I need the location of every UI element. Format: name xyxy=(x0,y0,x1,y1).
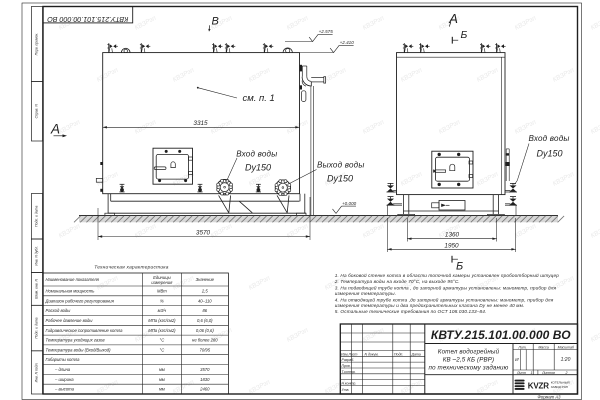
svg-text:Техническая характеристика: Техническая характеристика xyxy=(94,265,168,271)
svg-text:КВТУ.215.101.00.000 ВО: КВТУ.215.101.00.000 ВО xyxy=(47,15,129,24)
svg-text:см. п. 1: см. п. 1 xyxy=(243,93,275,104)
svg-text:Перв. примен.: Перв. примен. xyxy=(35,33,39,56)
svg-text:70/95: 70/95 xyxy=(200,347,211,352)
svg-text:В: В xyxy=(212,15,219,27)
svg-text:Подп.: Подп. xyxy=(394,352,403,356)
svg-text:Лит.: Лит. xyxy=(517,345,526,349)
svg-text:1. На боковой стенке котла: 1. На боковой стенке котла в области топ… xyxy=(335,272,559,278)
svg-text:Наименование показателя: Наименование показателя xyxy=(46,277,100,282)
svg-text:МПа (кгс/см2): МПа (кгс/см2) xyxy=(148,318,176,323)
svg-text:86: 86 xyxy=(202,308,207,313)
svg-text:измерения: измерения xyxy=(151,280,173,285)
svg-text:Вход воды: Вход воды xyxy=(236,149,277,158)
svg-text:Номинальная мощность: Номинальная мощность xyxy=(46,289,95,294)
svg-text:А: А xyxy=(448,11,458,26)
svg-text:Взам. инв. N: Взам. инв. N xyxy=(35,278,39,298)
svg-text:Гидравлическое сопротивление к: Гидравлическое сопротивление котла xyxy=(46,328,124,333)
svg-text:1830: 1830 xyxy=(200,377,210,382)
svg-text:Справ. N: Справ. N xyxy=(35,104,39,119)
svg-text:Утв.: Утв. xyxy=(342,388,350,392)
svg-text:+2.410: +2.410 xyxy=(340,40,355,45)
svg-text:3570: 3570 xyxy=(196,230,211,237)
svg-text:Температура уходящих газов: Температура уходящих газов xyxy=(46,338,106,343)
svg-text:м3/ч: м3/ч xyxy=(158,308,167,313)
svg-text:Изм.Лист: Изм.Лист xyxy=(341,352,358,356)
svg-text:– высота: – высота xyxy=(54,387,75,392)
svg-text:KVZR: KVZR xyxy=(528,381,549,390)
svg-text:Температура воды (Вход/Выход): Температура воды (Вход/Выход) xyxy=(46,347,112,352)
svg-text:+2.575: +2.575 xyxy=(319,29,334,34)
svg-text:– ширина: – ширина xyxy=(54,377,74,382)
svg-text:2,5: 2,5 xyxy=(201,289,208,294)
svg-text:МПа (кгс/см2): МПа (кгс/см2) xyxy=(148,328,176,333)
svg-text:Выход воды: Выход воды xyxy=(317,160,365,169)
svg-text:не более 280: не более 280 xyxy=(192,338,218,343)
svg-text:измерения температуры.: измерения температуры. xyxy=(335,291,396,296)
svg-text:Рабочее давление воды: Рабочее давление воды xyxy=(46,318,93,323)
svg-text:Подп. и дата: Подп. и дата xyxy=(35,317,39,338)
svg-text:И: И xyxy=(515,357,519,363)
svg-text:Dy150: Dy150 xyxy=(327,173,353,183)
svg-text:МВт: МВт xyxy=(157,289,167,294)
svg-text:КОТЕЛЬНЫЙ: КОТЕЛЬНЫЙ xyxy=(551,381,570,385)
svg-text:по техническому заданию: по техническому заданию xyxy=(429,365,509,372)
svg-text:0,06 (0,6): 0,06 (0,6) xyxy=(196,328,215,333)
svg-text:Габариты котла: Габариты котла xyxy=(46,357,81,362)
svg-text:Dy150: Dy150 xyxy=(537,148,563,158)
svg-text:КВТУ.215.101.00.000 ВО: КВТУ.215.101.00.000 ВО xyxy=(431,328,571,342)
svg-text:0,6 (6,0): 0,6 (6,0) xyxy=(197,318,213,323)
svg-text:Разраб.: Разраб. xyxy=(342,358,355,362)
svg-text:Масштаб: Масштаб xyxy=(558,345,575,349)
svg-text:1:20: 1:20 xyxy=(561,357,571,363)
svg-text:Формат А3: Формат А3 xyxy=(538,394,562,399)
svg-text:5. Остальные технические тре: 5. Остальные технические требования по О… xyxy=(335,309,487,314)
svg-text:Листов: Листов xyxy=(541,371,555,375)
svg-text:Расход воды: Расход воды xyxy=(46,308,71,313)
svg-text:1950: 1950 xyxy=(444,242,459,249)
svg-text:Подп. и дата: Подп. и дата xyxy=(35,206,39,227)
svg-text:Инв. N подл.: Инв. N подл. xyxy=(35,362,39,382)
svg-text:4. На отводящей трубе котла: 4. На отводящей трубе котла ,до запорной… xyxy=(335,296,554,302)
svg-text:Дата: Дата xyxy=(411,352,421,356)
svg-text:ЗАВОД РЭП: ЗАВОД РЭП xyxy=(551,385,568,389)
svg-text:Диапазон рабочего регулировани: Диапазон рабочего регулирования xyxy=(45,298,115,303)
svg-text:– длина: – длина xyxy=(54,367,71,372)
svg-text:Масса: Масса xyxy=(538,345,548,349)
svg-text:Пров.: Пров. xyxy=(342,364,351,368)
svg-text:3570: 3570 xyxy=(200,367,210,372)
svg-text:Котел водогрейный: Котел водогрейный xyxy=(438,349,500,356)
svg-text:40–110: 40–110 xyxy=(198,298,212,303)
svg-text:мм: мм xyxy=(159,367,165,372)
svg-text:мм: мм xyxy=(159,377,165,382)
svg-text:2460: 2460 xyxy=(199,387,210,392)
svg-text:+0.000: +0.000 xyxy=(342,201,357,206)
svg-text:1360: 1360 xyxy=(445,232,460,239)
svg-text:2: 2 xyxy=(565,371,568,375)
svg-text:КВ –2,5 КБ (РВР): КВ –2,5 КБ (РВР) xyxy=(443,357,495,364)
svg-text:1: 1 xyxy=(531,371,533,375)
svg-text:3. На подводящей трубе котл: 3. На подводящей трубе котла , до запорн… xyxy=(335,284,557,290)
svg-text:Лист: Лист xyxy=(516,371,526,375)
svg-text:Вход воды: Вход воды xyxy=(529,134,570,143)
svg-text:Б: Б xyxy=(456,261,463,273)
svg-text:N докум.: N докум. xyxy=(365,352,379,356)
svg-text:А: А xyxy=(50,121,60,136)
svg-text:Т.контр.: Т.контр. xyxy=(342,370,356,374)
svg-text:Б: Б xyxy=(461,29,468,41)
svg-text:Н.контр.: Н.контр. xyxy=(342,381,357,385)
svg-text:3315: 3315 xyxy=(193,120,208,127)
svg-text:Инв. N дубл.: Инв. N дубл. xyxy=(35,246,39,266)
svg-text:измерения температуры и два: измерения температуры и два предохраните… xyxy=(335,303,525,308)
svg-text:%: % xyxy=(160,298,164,303)
svg-text:Значение: Значение xyxy=(196,277,215,282)
svg-text:2. Температура воды на вход: 2. Температура воды на входе 70°С, на вы… xyxy=(334,279,460,284)
svg-text:Dy150: Dy150 xyxy=(245,162,271,172)
svg-text:мм: мм xyxy=(159,387,165,392)
